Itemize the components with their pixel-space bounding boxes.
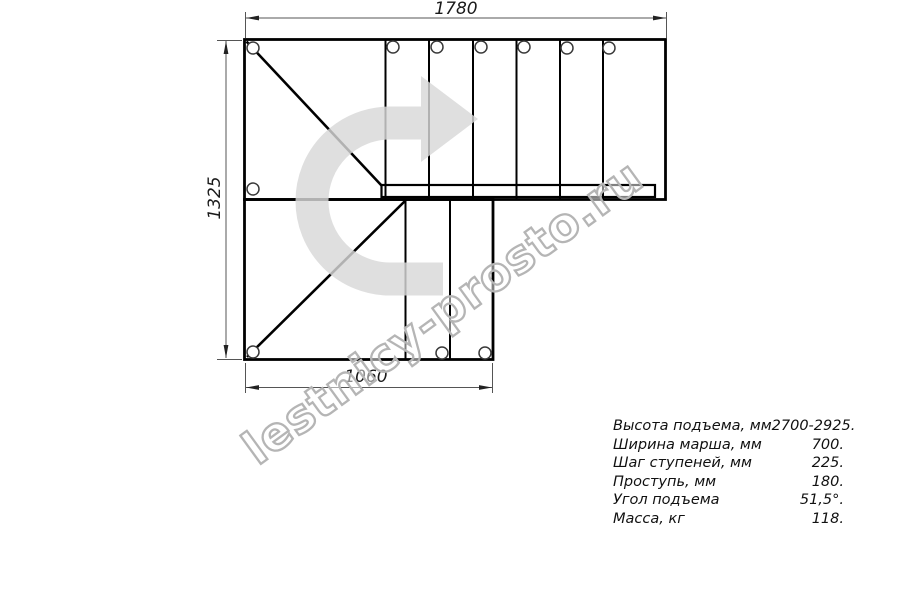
spec-row-angle: Угол подъема 51,5°. xyxy=(613,491,844,510)
dim-arrowhead xyxy=(224,345,229,358)
spec-label: Ширина марша, мм xyxy=(613,436,762,455)
specs-table: Высота подъема, мм 2700-2925. Ширина мар… xyxy=(613,417,844,529)
spec-label: Угол подъема xyxy=(613,491,720,510)
spec-label: Шаг ступеней, мм xyxy=(613,454,752,473)
spec-label: Масса, кг xyxy=(613,510,685,529)
spec-value: 700. xyxy=(812,436,844,455)
spec-value: 180. xyxy=(812,473,844,492)
dim-arrowhead xyxy=(246,16,259,21)
dim-arrowhead xyxy=(653,16,666,21)
dimension-top-label: 1780 xyxy=(434,0,477,19)
blueprint-canvas: 1780 1325 1060 xyxy=(0,0,900,600)
dim-arrowhead xyxy=(246,385,259,390)
dim-arrowhead xyxy=(479,385,492,390)
spec-row-step-pitch: Шаг ступеней, мм 225. xyxy=(613,454,844,473)
spec-label: Высота подъема, мм xyxy=(613,417,772,436)
dimension-left-label: 1325 xyxy=(205,176,225,219)
spec-label: Проступь, мм xyxy=(613,473,716,492)
dim-arrowhead xyxy=(224,41,229,54)
spec-value: 51,5°. xyxy=(800,491,844,510)
spec-row-flight-width: Ширина марша, мм 700. xyxy=(613,436,844,455)
u-turn-right-arrow-icon xyxy=(312,76,478,279)
spec-row-mass: Масса, кг 118. xyxy=(613,510,844,529)
spec-row-tread: Проступь, мм 180. xyxy=(613,473,844,492)
spec-value: 225. xyxy=(812,454,844,473)
spec-value: 118. xyxy=(812,510,844,529)
spec-value: 2700-2925. xyxy=(772,417,856,436)
spec-row-height: Высота подъема, мм 2700-2925. xyxy=(613,417,844,436)
